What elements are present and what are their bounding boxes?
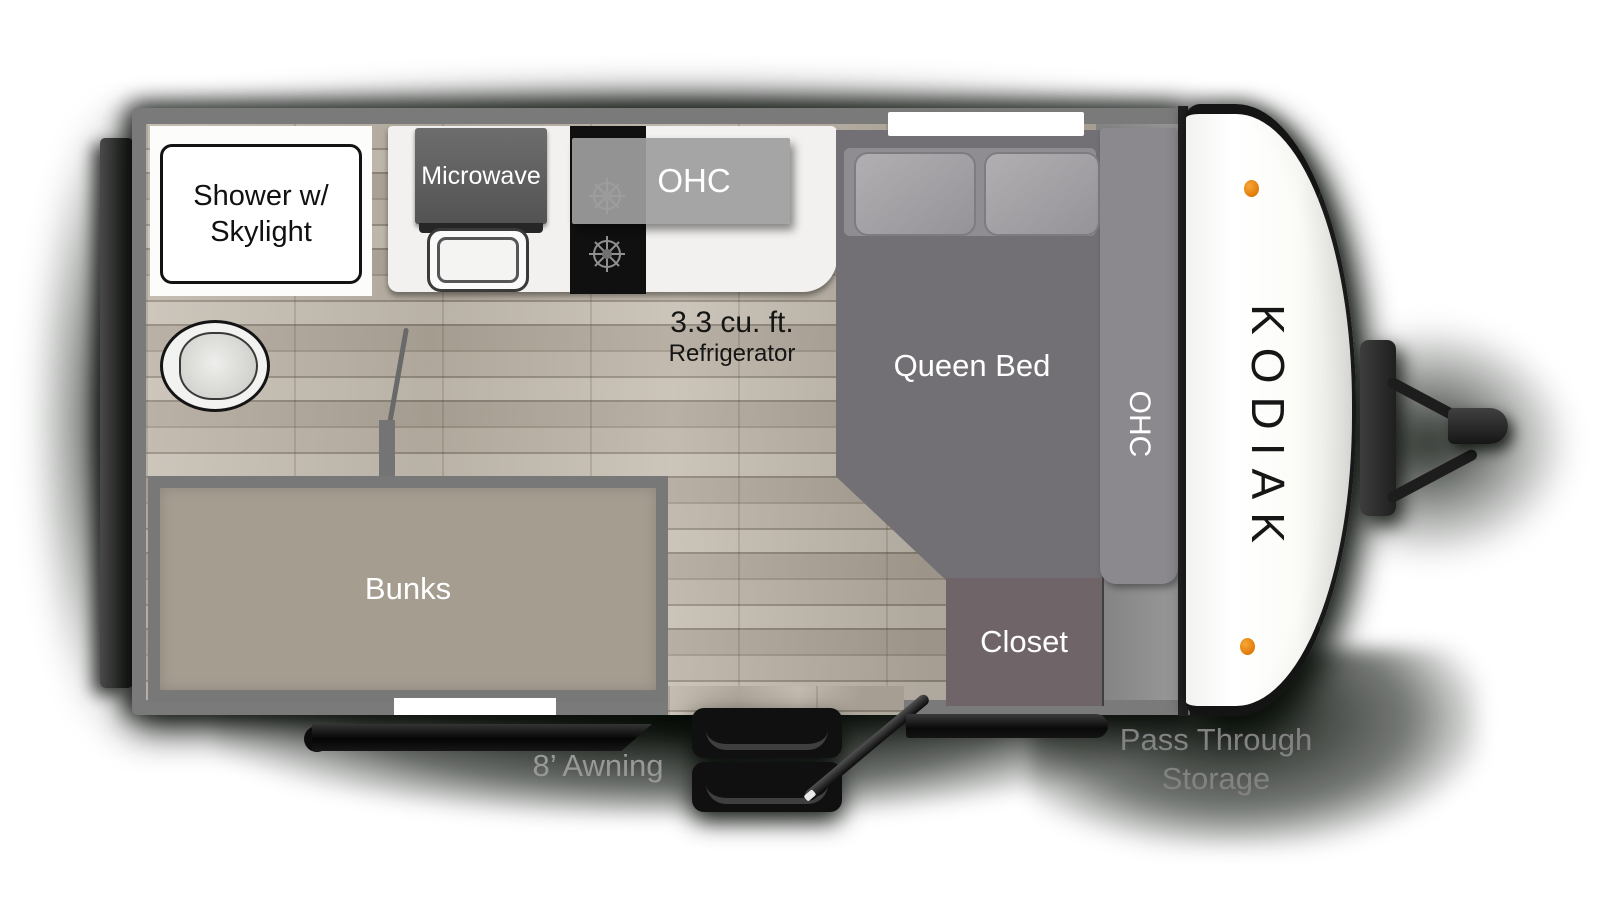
refrigerator-word: Refrigerator <box>602 340 862 368</box>
rear-bumper <box>100 138 133 688</box>
marker-light <box>1240 638 1255 655</box>
awning-label: 8’ Awning <box>478 748 718 784</box>
hitch-frame-bar-lower <box>1385 448 1478 505</box>
pillow <box>984 152 1100 236</box>
bunks: Bunks <box>160 488 656 690</box>
refrigerator-label: 3.3 cu. ft. Refrigerator <box>602 306 862 368</box>
sink-basin <box>437 237 519 283</box>
bunks-window <box>394 698 556 715</box>
floorplan-canvas: Shower w/ Skylight Microwave OHC 3. <box>0 0 1600 902</box>
marker-light <box>1244 180 1259 197</box>
trailer-body: Shower w/ Skylight Microwave OHC 3. <box>132 108 1190 715</box>
shower-label-line2: Skylight <box>210 214 312 250</box>
bedroom-window <box>888 112 1084 136</box>
toilet <box>160 320 270 412</box>
bathroom-wall <box>379 420 395 482</box>
shower-label-box: Shower w/ Skylight <box>160 144 362 284</box>
queen-bed-label: Queen Bed <box>862 348 1082 384</box>
kitchen-sink <box>427 228 529 292</box>
bedside-ohc-label: OHC <box>1122 391 1156 458</box>
awning-rail-right <box>906 714 1108 738</box>
kitchen-overhead-cabinet: OHC <box>572 138 790 224</box>
bedside-overhead-cabinet: OHC <box>1100 128 1178 584</box>
hitch-coupler <box>1448 408 1508 444</box>
toilet-bowl <box>179 332 258 400</box>
refrigerator-size: 3.3 cu. ft. <box>602 306 862 340</box>
pass-through-line1: Pass Through <box>1086 720 1346 759</box>
microwave-label: Microwave <box>421 162 540 191</box>
closet: Closet <box>946 578 1104 706</box>
shower-label-line1: Shower w/ <box>193 178 328 214</box>
pass-through-storage-label: Pass Through Storage <box>1086 720 1346 798</box>
kitchen-ohc-label: OHC <box>657 162 730 200</box>
burner-icon <box>587 234 627 279</box>
awning-rail-left <box>312 724 652 751</box>
microwave: Microwave <box>415 128 547 224</box>
closet-label: Closet <box>980 624 1068 660</box>
pillow <box>854 152 976 236</box>
hitch-tongue-box <box>1360 340 1396 516</box>
kodiak-logo: KODIAK <box>1238 285 1298 575</box>
bunks-label: Bunks <box>365 571 451 607</box>
pass-through-line2: Storage <box>1086 759 1346 798</box>
